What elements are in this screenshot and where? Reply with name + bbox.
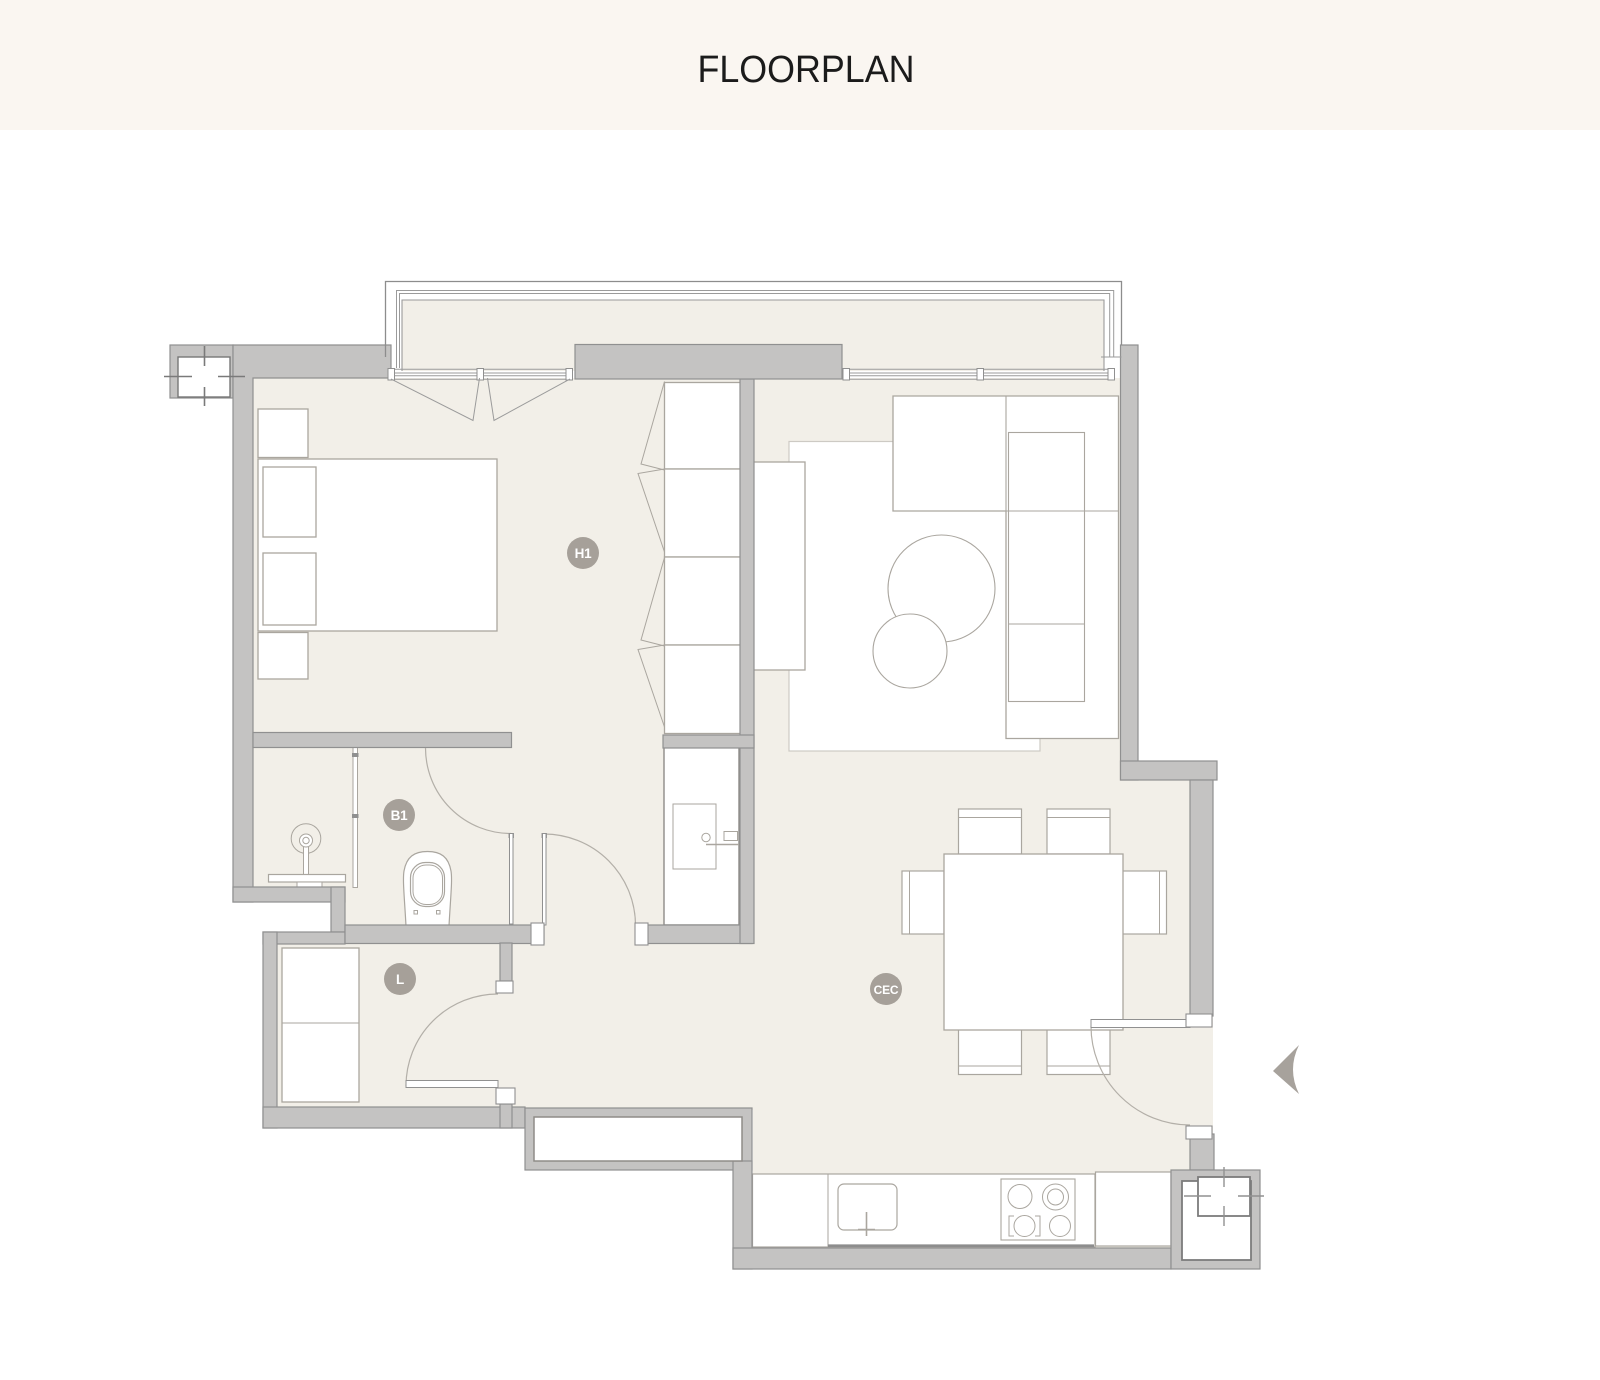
svg-text:L: L — [396, 972, 404, 987]
svg-text:H1: H1 — [575, 546, 593, 561]
svg-text:B1: B1 — [391, 808, 409, 823]
svg-text:FLOORPLAN: FLOORPLAN — [698, 49, 915, 91]
svg-text:CEC: CEC — [874, 983, 899, 997]
